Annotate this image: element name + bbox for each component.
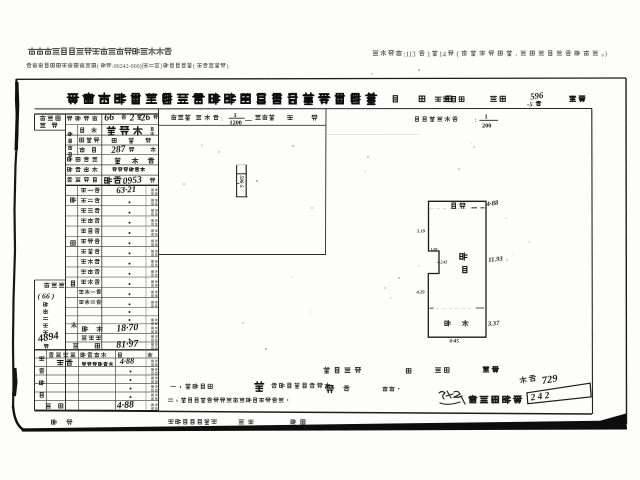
svg-text:。): 。) — [602, 50, 608, 57]
svg-text:1.09: 1.09 — [431, 248, 438, 252]
svg-text:200: 200 — [482, 122, 491, 129]
svg-text:): ) — [227, 63, 229, 70]
svg-text:287: 287 — [110, 144, 127, 156]
svg-text::: : — [221, 116, 223, 123]
svg-text:1: 1 — [485, 114, 488, 121]
svg-text:4.29: 4.29 — [416, 289, 426, 294]
svg-text:5.19: 5.19 — [417, 228, 426, 233]
svg-text:81·97: 81·97 — [116, 338, 140, 351]
svg-text:18·70: 18·70 — [116, 322, 139, 335]
svg-text:14: 14 — [439, 50, 447, 58]
svg-text:(: ( — [97, 63, 99, 70]
svg-text:]: ] — [160, 64, 162, 70]
svg-text:-5: -5 — [527, 102, 533, 109]
svg-text:(: ( — [193, 63, 195, 70]
svg-text:1: 1 — [427, 50, 431, 58]
svg-text::00242-000)[: :00242-000)[ — [112, 63, 144, 70]
svg-text:596: 596 — [530, 90, 545, 102]
svg-text:596-5: 596-5 — [238, 176, 244, 189]
svg-text:66: 66 — [104, 112, 115, 124]
svg-text:26: 26 — [139, 113, 151, 124]
svg-text:3.37: 3.37 — [487, 320, 501, 328]
svg-text::: : — [475, 117, 477, 124]
svg-text:4·88: 4·88 — [119, 356, 135, 366]
svg-text:2.42: 2.42 — [440, 260, 448, 264]
svg-text:4·88: 4·88 — [115, 399, 134, 411]
svg-text::113: :113 — [404, 50, 417, 58]
svg-text:63·21: 63·21 — [116, 184, 136, 195]
svg-text:6·45: 6·45 — [450, 338, 460, 344]
svg-text:( 66 ): ( 66 ) — [38, 292, 55, 301]
